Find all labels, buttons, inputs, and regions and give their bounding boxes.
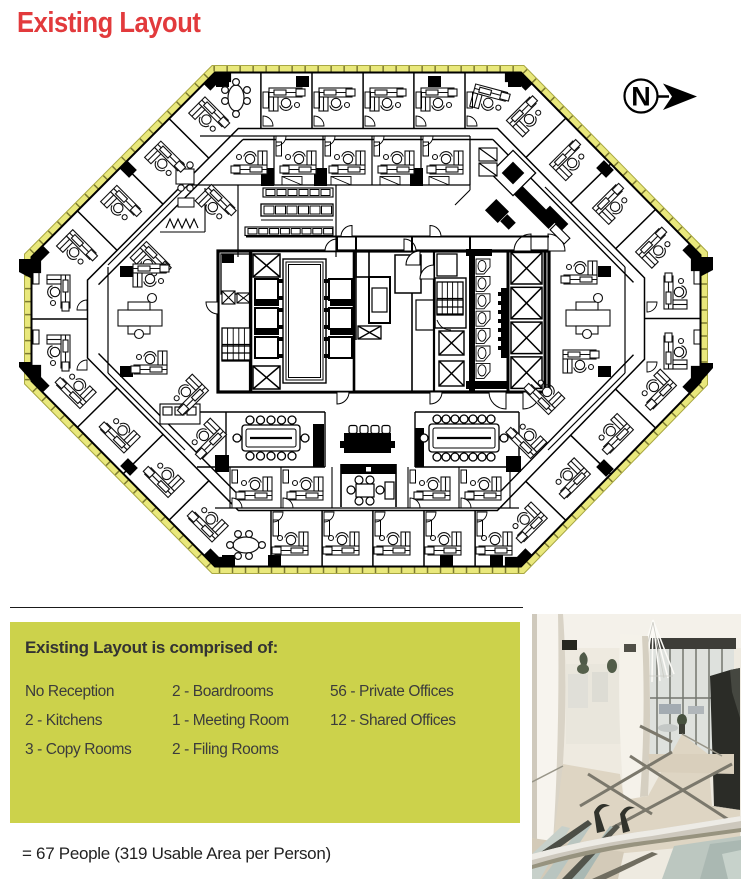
svg-text:N: N (631, 82, 651, 112)
